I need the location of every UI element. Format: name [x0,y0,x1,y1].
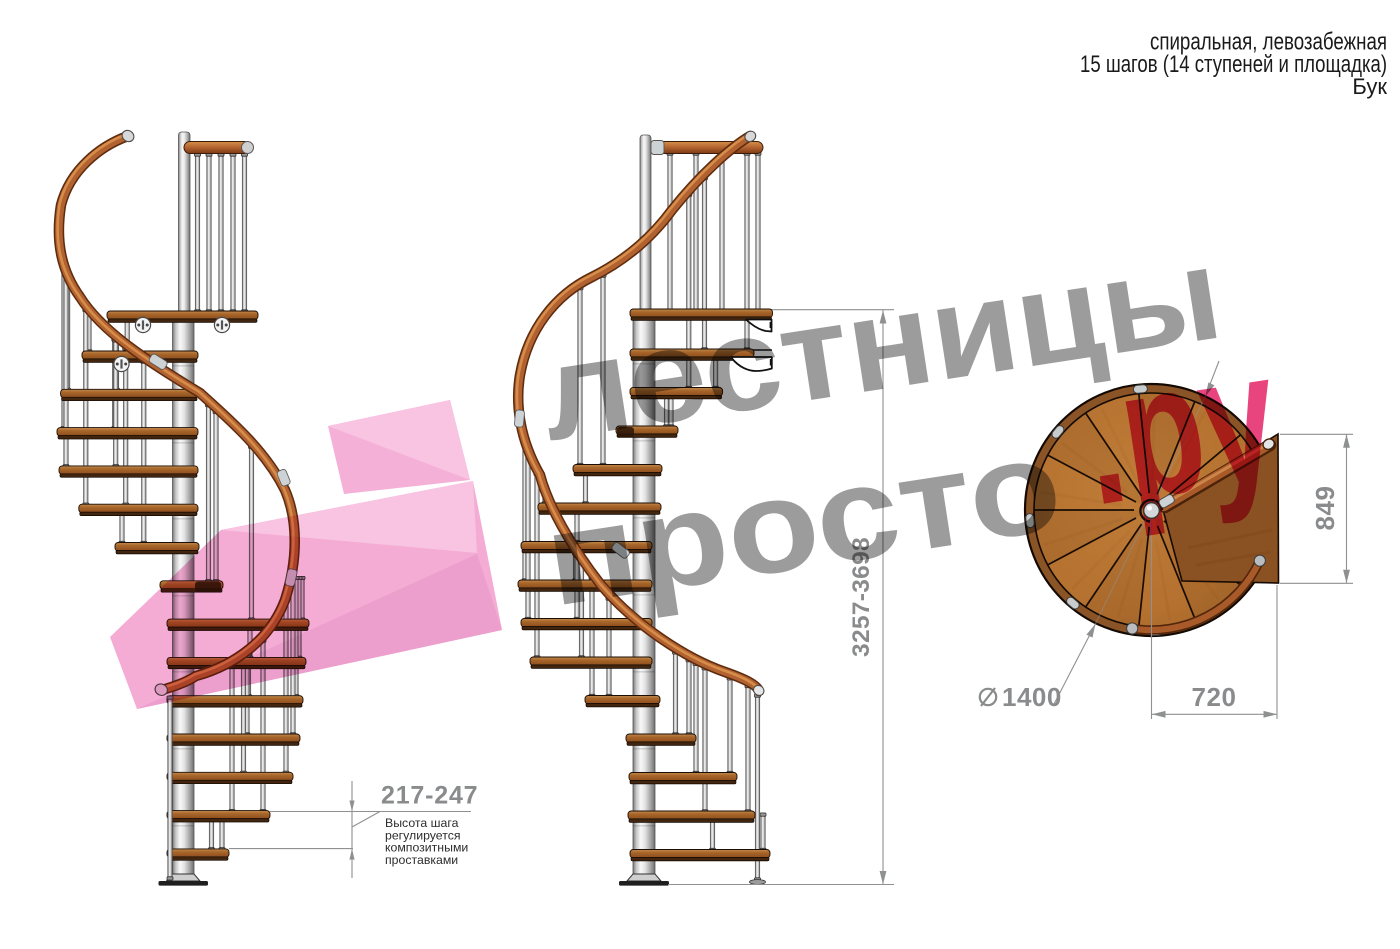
svg-text:720: 720 [1192,682,1237,712]
svg-text:1400: 1400 [1002,682,1062,712]
svg-text:.ру: .ру [1070,312,1290,545]
svg-text:15 шагов (14 ступеней и площад: 15 шагов (14 ступеней и площадка) [1080,51,1387,78]
svg-text:Бук: Бук [1352,74,1387,99]
svg-text:849: 849 [1310,486,1340,531]
svg-text:217-247: 217-247 [381,782,478,810]
svg-text:Высота шагарегулируетсякомпози: Высота шагарегулируетсякомпозитнымипрост… [385,816,468,867]
